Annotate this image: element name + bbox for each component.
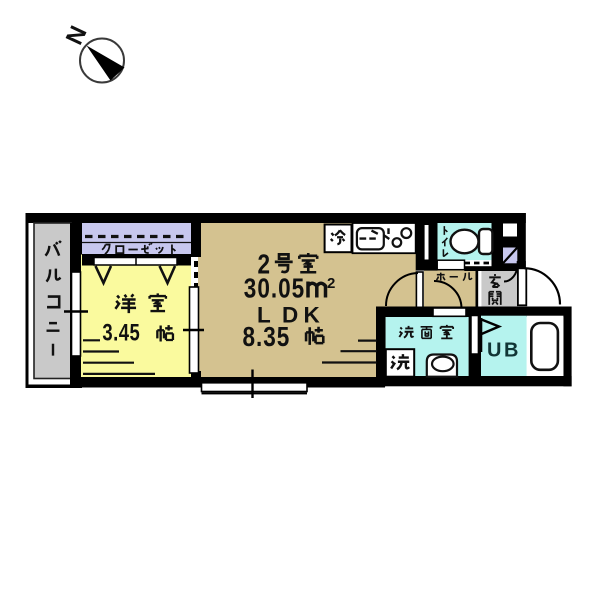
svg-text:3.45: 3.45 (102, 319, 140, 346)
svg-text:K: K (304, 302, 321, 327)
svg-text:8.35: 8.35 (243, 322, 291, 353)
svg-text:2: 2 (327, 275, 335, 292)
svg-text:30.05: 30.05 (244, 273, 305, 304)
svg-text:B: B (504, 340, 518, 362)
svg-text:U: U (487, 340, 501, 362)
